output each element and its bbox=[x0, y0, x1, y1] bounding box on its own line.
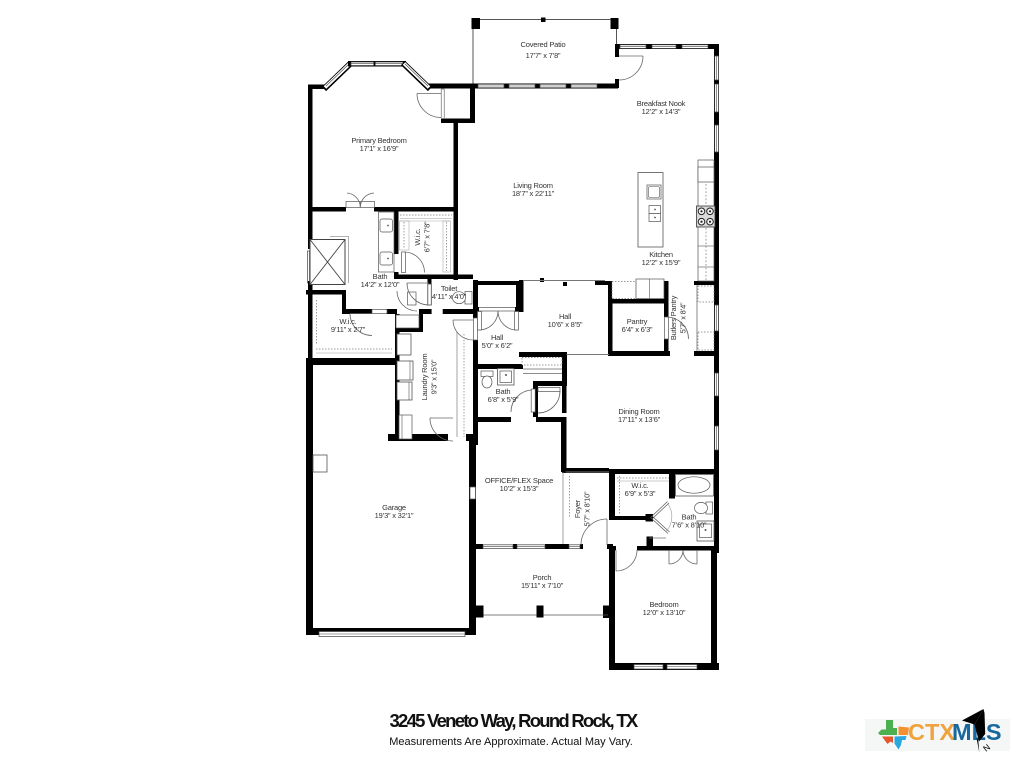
svg-text:7’6” x 8’10”: 7’6” x 8’10” bbox=[672, 521, 707, 530]
svg-text:6’8” x 5’9”: 6’8” x 5’9” bbox=[488, 395, 519, 404]
svg-text:14’2” x 12’0”: 14’2” x 12’0” bbox=[361, 280, 400, 289]
svg-text:6’7” x 7’8”: 6’7” x 7’8” bbox=[423, 221, 432, 252]
svg-text:15’11” x 7’10”: 15’11” x 7’10” bbox=[521, 581, 564, 590]
svg-text:3245 Veneto Way, Round Rock, T: 3245 Veneto Way, Round Rock, TX bbox=[390, 710, 639, 731]
svg-text:9’3” x 15’0”: 9’3” x 15’0” bbox=[430, 359, 439, 394]
svg-text:Measurements Are Approximate.: Measurements Are Approximate. Actual May… bbox=[389, 736, 633, 748]
svg-text:19’3” x 32’1”: 19’3” x 32’1” bbox=[375, 511, 414, 520]
svg-text:5’7” x 8’10”: 5’7” x 8’10” bbox=[583, 491, 592, 526]
svg-text:Covered Patio: Covered Patio bbox=[521, 40, 566, 49]
svg-text:10’2” x 15’3”: 10’2” x 15’3” bbox=[500, 484, 539, 493]
svg-text:17’11” x 13’6”: 17’11” x 13’6” bbox=[618, 415, 661, 424]
svg-text:5’7” x 8’4”: 5’7” x 8’4” bbox=[679, 302, 688, 333]
svg-text:6’4” x 6’3”: 6’4” x 6’3” bbox=[622, 325, 653, 334]
svg-text:CTX: CTX bbox=[908, 719, 955, 745]
svg-text:9’11” x 2’7”: 9’11” x 2’7” bbox=[331, 325, 366, 334]
svg-text:18’7” x 22’11”: 18’7” x 22’11” bbox=[512, 189, 555, 198]
svg-text:12’2” x 14’3”: 12’2” x 14’3” bbox=[642, 107, 681, 116]
svg-text:Foyer: Foyer bbox=[573, 499, 582, 518]
svg-text:12’0” x 13’10”: 12’0” x 13’10” bbox=[643, 608, 686, 617]
svg-text:10’6” x 8’5”: 10’6” x 8’5” bbox=[548, 320, 583, 329]
svg-text:17’7” x 7’8”: 17’7” x 7’8” bbox=[526, 51, 561, 60]
svg-text:5’0” x 6’2”: 5’0” x 6’2” bbox=[482, 341, 513, 350]
svg-text:4’11” x 4’0”: 4’11” x 4’0” bbox=[432, 292, 467, 301]
svg-text:6’9” x 5’3”: 6’9” x 5’3” bbox=[625, 489, 656, 498]
svg-text:Laundry Room: Laundry Room bbox=[420, 354, 429, 401]
svg-text:12’2” x 15’9”: 12’2” x 15’9” bbox=[642, 258, 681, 267]
svg-text:Butlers Pantry: Butlers Pantry bbox=[669, 295, 678, 340]
svg-text:17’1” x 16’9”: 17’1” x 16’9” bbox=[360, 144, 399, 153]
svg-text:W.i.c.: W.i.c. bbox=[413, 228, 422, 245]
